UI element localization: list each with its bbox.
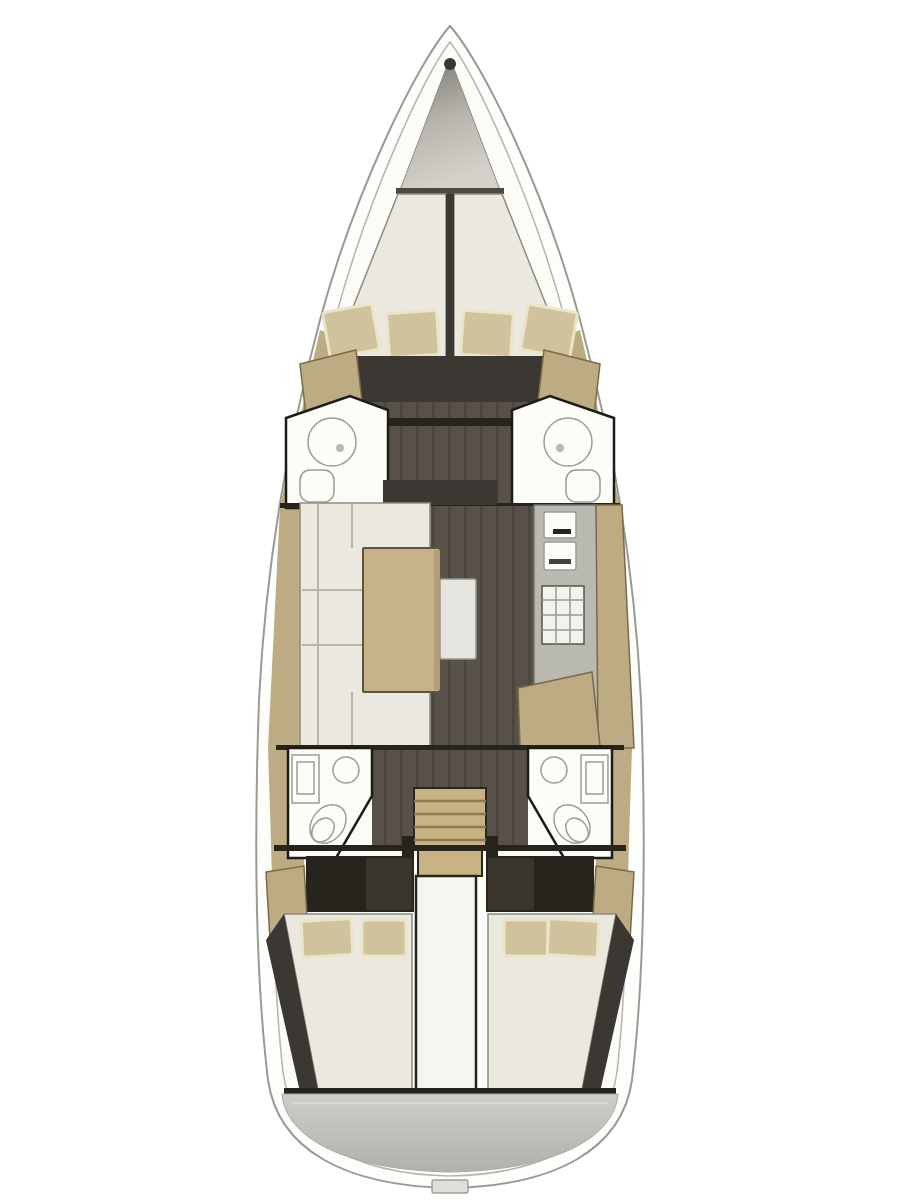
forward-head-port-toilet	[300, 470, 334, 502]
aft-port-pillow-1	[301, 919, 353, 958]
forward-head-starboard-toilet	[566, 470, 600, 502]
stair-landing	[418, 850, 482, 876]
aft-cabin-port-headboard-panel	[366, 858, 412, 910]
floorplan-canvas	[0, 0, 900, 1200]
aft-cabin-starboard-headboard-panel	[488, 858, 534, 910]
galley-faucet	[553, 529, 571, 534]
aft-berth-footline	[284, 1088, 616, 1094]
aft-port-pillow-2	[362, 920, 406, 956]
forward-berth-divider	[446, 194, 454, 362]
forward-pillow-1	[322, 304, 379, 358]
swim-ladder-notch	[432, 1180, 468, 1193]
aft-starboard-pillow-2	[547, 919, 599, 958]
galley-sink-2	[544, 542, 576, 570]
forward-head-port-shower	[308, 418, 356, 466]
forward-doorway	[383, 480, 497, 505]
yacht-floorplan	[0, 0, 900, 1200]
forward-head-starboard-drain	[556, 444, 564, 452]
forward-berth-footboard	[342, 356, 558, 402]
aft-starboard-pillow-1	[504, 920, 548, 956]
aft-head-port-sink	[333, 757, 359, 783]
forward-berth-headline	[396, 188, 504, 194]
bow-fitting	[444, 58, 456, 70]
salon-table	[363, 548, 440, 692]
aft-head-starboard-sink	[541, 757, 567, 783]
forward-head-port-drain	[336, 444, 344, 452]
galley-outboard-cabinet	[596, 505, 634, 748]
salon-bench-seat	[440, 579, 476, 659]
engine-compartment	[416, 876, 476, 1090]
forward-pillow-4	[520, 304, 577, 358]
forward-pillow-3	[461, 310, 514, 357]
forward-pillow-2	[387, 310, 440, 357]
forward-head-starboard-shower	[544, 418, 592, 466]
galley-faucet-2	[549, 559, 571, 564]
galley-sink-1	[544, 512, 576, 538]
salon-table-edge	[434, 550, 440, 690]
